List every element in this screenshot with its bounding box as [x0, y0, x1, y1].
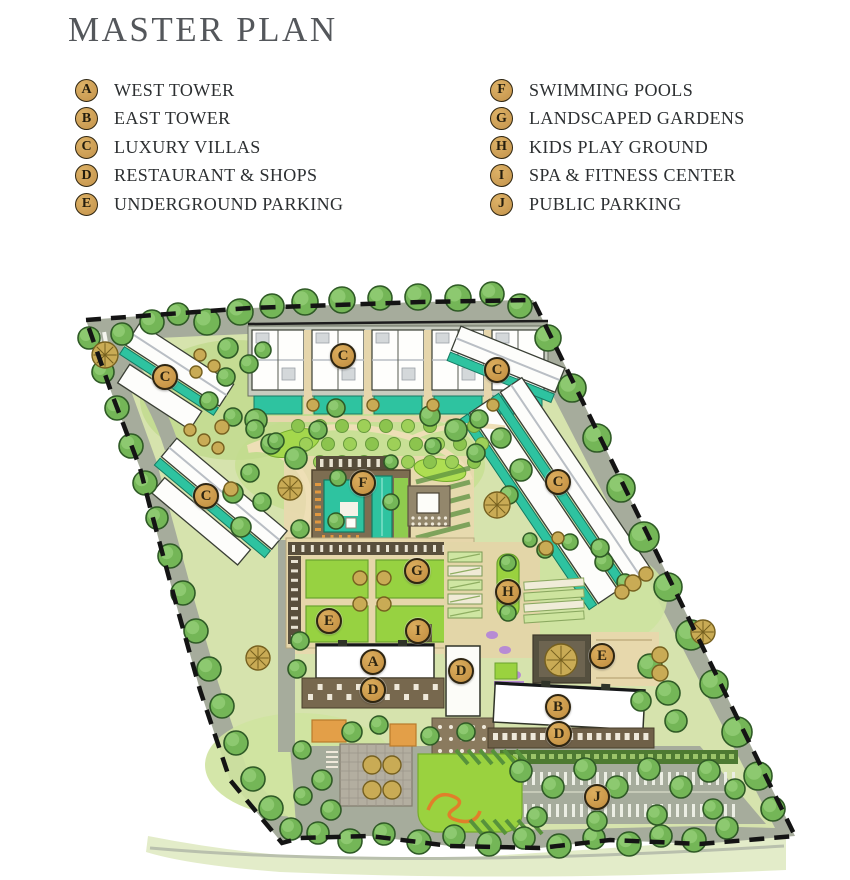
map-marker-west-tower: A — [360, 649, 386, 675]
legend-badge: J — [490, 193, 513, 216]
legend-badge: D — [75, 164, 98, 187]
legend-column-left: AWEST TOWER BEAST TOWER CLUXURY VILLAS D… — [75, 76, 343, 219]
legend-item: EUNDERGROUND PARKING — [75, 190, 343, 219]
legend-badge: G — [490, 107, 513, 130]
legend-column-right: FSWIMMING POOLS GLANDSCAPED GARDENS HKID… — [490, 76, 745, 219]
legend-label: SPA & FITNESS CENTER — [529, 165, 736, 186]
spa-pavilion — [408, 486, 450, 526]
legend-badge: H — [490, 136, 513, 159]
legend-label: LUXURY VILLAS — [114, 137, 261, 158]
map-marker-restaurant-shops-east: D — [546, 721, 572, 747]
legend-label: PUBLIC PARKING — [529, 194, 681, 215]
legend-item: JPUBLIC PARKING — [490, 190, 745, 219]
map-marker-spa-fitness-center: I — [405, 618, 431, 644]
master-plan-page: MASTER PLAN AWEST TOWER BEAST TOWER CLUX… — [0, 0, 850, 880]
legend-badge: E — [75, 193, 98, 216]
legend-item: FSWIMMING POOLS — [490, 76, 745, 105]
legend-label: RESTAURANT & SHOPS — [114, 165, 317, 186]
map-marker-restaurant-shops-center: D — [448, 658, 474, 684]
legend-badge: C — [75, 136, 98, 159]
legend-item: GLANDSCAPED GARDENS — [490, 105, 745, 134]
legend-badge: B — [75, 107, 98, 130]
legend-item: BEAST TOWER — [75, 105, 343, 134]
legend-badge: A — [75, 79, 98, 102]
legend-label: UNDERGROUND PARKING — [114, 194, 343, 215]
map-marker-luxury-villas-west: C — [193, 483, 219, 509]
map-marker-swimming-pools: F — [350, 470, 376, 496]
legend-item: HKIDS PLAY GROUND — [490, 133, 745, 162]
legend-label: WEST TOWER — [114, 80, 235, 101]
page-title: MASTER PLAN — [68, 10, 338, 50]
map-marker-underground-parking-east: E — [589, 643, 615, 669]
map-marker-luxury-villas-north-row: C — [330, 343, 356, 369]
map-marker-luxury-villas-northeast: C — [484, 357, 510, 383]
map-marker-luxury-villas-northwest: C — [152, 364, 178, 390]
map-marker-east-tower: B — [545, 694, 571, 720]
legend-badge: F — [490, 79, 513, 102]
legend-item: ISPA & FITNESS CENTER — [490, 162, 745, 191]
legend-label: KIDS PLAY GROUND — [529, 137, 708, 158]
map-marker-public-parking: J — [584, 784, 610, 810]
map-marker-luxury-villas-east: C — [545, 469, 571, 495]
map-marker-underground-parking-west: E — [316, 608, 342, 634]
legend-badge: I — [490, 164, 513, 187]
map-marker-kids-play-ground: H — [495, 579, 521, 605]
legend-item: AWEST TOWER — [75, 76, 343, 105]
map-marker-landscaped-gardens: G — [404, 558, 430, 584]
master-plan-map: CCCCCFGHEIADEDBDJ — [0, 280, 850, 880]
legend-item: CLUXURY VILLAS — [75, 133, 343, 162]
legend-label: SWIMMING POOLS — [529, 80, 693, 101]
legend-label: LANDSCAPED GARDENS — [529, 108, 745, 129]
legend-label: EAST TOWER — [114, 108, 231, 129]
legend-item: DRESTAURANT & SHOPS — [75, 162, 343, 191]
map-marker-restaurant-shops-west: D — [360, 677, 386, 703]
